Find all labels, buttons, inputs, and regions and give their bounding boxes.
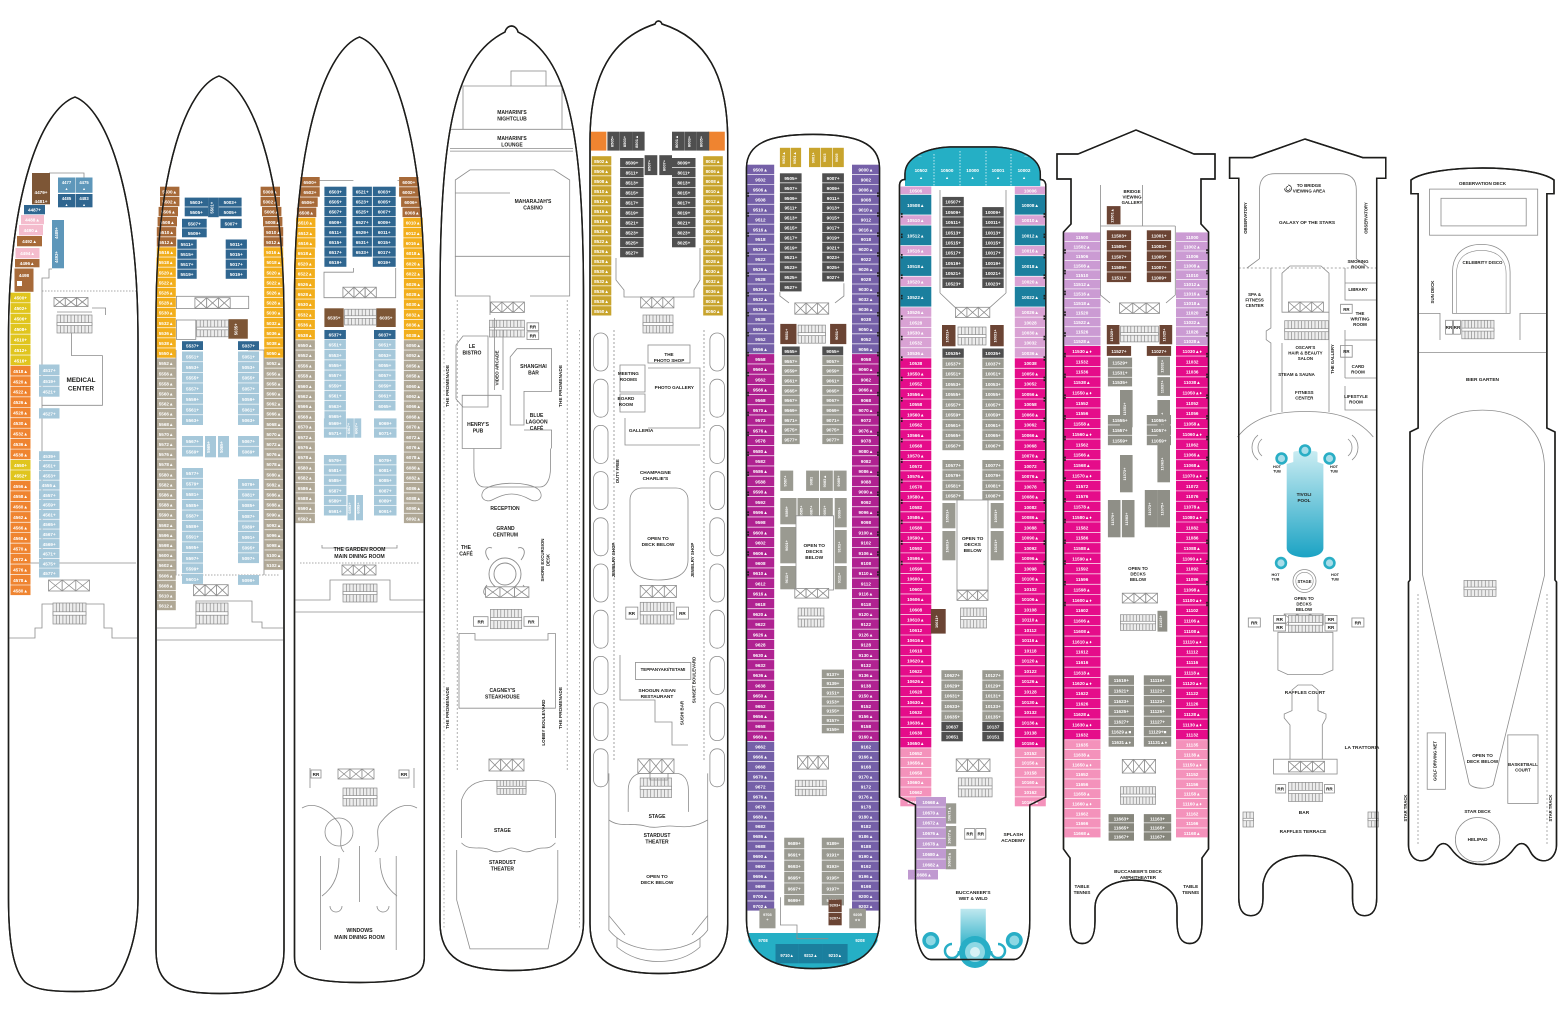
- svg-text:10510▲: 10510▲: [907, 218, 924, 223]
- svg-text:6010▲: 6010▲: [406, 221, 421, 226]
- svg-text:5019+: 5019+: [230, 272, 243, 277]
- svg-text:5512▲: 5512▲: [159, 240, 174, 245]
- svg-text:5057+: 5057+: [242, 386, 255, 391]
- svg-text:THE PROMENADE: THE PROMENADE: [558, 686, 564, 729]
- svg-text:9128: 9128: [861, 643, 872, 648]
- svg-text:5608▲: 5608▲: [159, 583, 174, 588]
- svg-text:DECKS: DECKS: [806, 549, 824, 555]
- svg-text:9528: 9528: [755, 277, 766, 282]
- svg-text:5580▲: 5580▲: [159, 472, 174, 477]
- svg-text:5026▲: 5026▲: [267, 291, 282, 296]
- svg-text:6537+: 6537+: [329, 333, 342, 338]
- svg-text:10021+: 10021+: [985, 271, 1001, 276]
- svg-text:5560▲: 5560▲: [159, 392, 174, 397]
- svg-text:VIEWING: VIEWING: [1122, 195, 1142, 200]
- svg-text:STARDUST: STARDUST: [489, 860, 516, 866]
- svg-text:LAGOON: LAGOON: [526, 420, 548, 426]
- svg-text:9152: 9152: [861, 704, 872, 709]
- svg-text:4506+: 4506+: [14, 317, 27, 322]
- svg-text:11667+: 11667+: [1114, 835, 1130, 840]
- svg-text:5072▲: 5072▲: [267, 442, 282, 447]
- svg-text:6089+: 6089+: [379, 499, 392, 504]
- svg-text:PHOTO SHOP: PHOTO SHOP: [654, 358, 685, 363]
- svg-text:10580▲: 10580▲: [907, 495, 924, 500]
- svg-text:9555+: 9555+: [784, 349, 797, 354]
- svg-text:11025+: 11025+: [1162, 328, 1167, 342]
- svg-text:9070▲: 9070▲: [859, 408, 874, 413]
- svg-text:AMPHITHEATER: AMPHITHEATER: [1120, 875, 1157, 880]
- svg-text:10036▲: 10036▲: [1022, 351, 1039, 356]
- svg-text:5503+: 5503+: [190, 200, 203, 205]
- svg-text:6085+: 6085+: [379, 478, 392, 483]
- svg-text:5601+: 5601+: [186, 577, 199, 582]
- svg-text:10011+: 10011+: [985, 220, 1001, 225]
- svg-text:11092: 11092: [1186, 567, 1199, 572]
- svg-text:9188: 9188: [861, 844, 872, 849]
- svg-text:★★: ★★: [854, 918, 861, 922]
- svg-text:10016▲: 10016▲: [1022, 249, 1039, 254]
- svg-text:6565+: 6565+: [329, 414, 342, 419]
- svg-text:9026▲: 9026▲: [859, 267, 874, 272]
- svg-text:10032: 10032: [1024, 341, 1037, 346]
- svg-text:9108: 9108: [861, 561, 872, 566]
- svg-text:8018▲: 8018▲: [706, 219, 721, 224]
- svg-text:11508▲: 11508▲: [1073, 263, 1090, 268]
- svg-text:5587+: 5587+: [186, 513, 199, 518]
- svg-text:11082: 11082: [1186, 525, 1199, 530]
- svg-text:5538▲: 5538▲: [159, 341, 174, 346]
- svg-text:9618: 9618: [755, 602, 766, 607]
- svg-text:▲: ▲: [919, 175, 923, 180]
- svg-text:9552: 9552: [755, 337, 766, 342]
- svg-text:6528▲: 6528▲: [298, 292, 313, 297]
- svg-text:9556▲: 9556▲: [753, 347, 768, 352]
- svg-text:TEPPANYAKI/TETAMI: TEPPANYAKI/TETAMI: [641, 667, 686, 672]
- svg-text:11535+: 11535+: [1112, 380, 1128, 385]
- svg-text:9153+: 9153+: [826, 700, 839, 705]
- svg-text:4498: 4498: [19, 273, 30, 278]
- svg-text:BELOW: BELOW: [964, 548, 982, 554]
- svg-text:SMOKING: SMOKING: [1348, 259, 1370, 264]
- svg-text:5088▲: 5088▲: [267, 503, 282, 508]
- svg-text:9522: 9522: [755, 257, 766, 262]
- svg-text:8512▲: 8512▲: [594, 199, 609, 204]
- svg-text:9126▲: 9126▲: [859, 632, 874, 637]
- svg-text:9101+: 9101+: [836, 541, 841, 553]
- svg-text:8501▲: 8501▲: [634, 135, 639, 148]
- svg-text:10150▲: 10150▲: [1022, 741, 1039, 746]
- svg-text:8511+: 8511+: [626, 171, 639, 176]
- svg-text:6505+: 6505+: [329, 200, 342, 205]
- svg-text:11100▲♦: 11100▲♦: [1183, 598, 1203, 603]
- svg-text:9589+: 9589+: [784, 505, 789, 517]
- svg-text:9090▲: 9090▲: [859, 490, 874, 495]
- svg-text:9193+: 9193+: [826, 864, 839, 869]
- svg-text:9702▲: 9702▲: [753, 904, 768, 909]
- svg-text:10553+: 10553+: [945, 382, 961, 387]
- svg-text:6525+: 6525+: [356, 210, 369, 215]
- svg-text:9118: 9118: [861, 602, 871, 607]
- svg-text:5069+: 5069+: [242, 450, 255, 455]
- svg-text:9708: 9708: [758, 938, 768, 943]
- svg-text:5051+: 5051+: [242, 355, 255, 360]
- svg-text:10682▲: 10682▲: [922, 862, 939, 867]
- svg-text:11527+: 11527+: [1111, 349, 1127, 354]
- svg-text:6053+: 6053+: [378, 353, 391, 358]
- svg-text:8032▲: 8032▲: [706, 279, 721, 284]
- svg-text:11121+: 11121+: [1150, 689, 1165, 694]
- svg-text:9506▲: 9506▲: [753, 187, 768, 192]
- svg-text:5558▲: 5558▲: [159, 381, 174, 386]
- svg-text:9596▲: 9596▲: [753, 510, 768, 515]
- svg-text:10531+: 10531+: [945, 329, 950, 343]
- svg-text:6093+: 6093+: [355, 502, 360, 514]
- svg-text:10530▲: 10530▲: [907, 331, 924, 336]
- svg-text:5068▲: 5068▲: [267, 422, 282, 427]
- svg-text:DECKS: DECKS: [1296, 602, 1311, 607]
- svg-text:8510▲: 8510▲: [594, 189, 609, 194]
- svg-text:4520▲: 4520▲: [13, 379, 28, 384]
- svg-text:TUB: TUB: [1330, 470, 1338, 474]
- svg-text:5510▲: 5510▲: [159, 230, 174, 235]
- svg-text:STEAM & SAUNA: STEAM & SAUNA: [1278, 372, 1315, 377]
- svg-text:6070▲: 6070▲: [406, 425, 421, 430]
- svg-text:10662: 10662: [909, 790, 922, 795]
- svg-text:10681▲: 10681▲: [947, 852, 952, 867]
- svg-text:10591+: 10591+: [945, 509, 950, 523]
- svg-text:9068: 9068: [861, 398, 872, 403]
- svg-text:JEWELRY SHOP: JEWELRY SHOP: [690, 543, 695, 578]
- svg-text:HOT: HOT: [1330, 465, 1339, 469]
- svg-text:9208: 9208: [855, 938, 865, 943]
- svg-text:6072▲: 6072▲: [406, 435, 421, 440]
- svg-text:9198: 9198: [861, 884, 872, 889]
- svg-text:5576▲: 5576▲: [159, 452, 174, 457]
- svg-text:10519+: 10519+: [945, 261, 961, 266]
- svg-text:11150▲♦: 11150▲♦: [1183, 762, 1203, 767]
- svg-text:10572: 10572: [909, 464, 922, 469]
- svg-text:10058: 10058: [1024, 402, 1037, 407]
- svg-text:4517+: 4517+: [43, 368, 56, 373]
- svg-text:11112: 11112: [1186, 650, 1198, 655]
- svg-text:6561+: 6561+: [329, 394, 342, 399]
- svg-text:9517+: 9517+: [784, 235, 797, 240]
- svg-text:10555+: 10555+: [945, 392, 961, 397]
- svg-text:10122: 10122: [1024, 669, 1037, 674]
- svg-text:6050▲: 6050▲: [406, 343, 421, 348]
- svg-text:THE PROMENADE: THE PROMENADE: [445, 364, 451, 407]
- svg-text:CENTER: CENTER: [68, 386, 95, 393]
- svg-text:5532▲: 5532▲: [159, 321, 174, 326]
- svg-text:11520: 11520: [1076, 311, 1089, 316]
- svg-text:6008▲: 6008▲: [405, 210, 420, 215]
- svg-text:HOT: HOT: [1331, 573, 1340, 577]
- svg-text:11167+: 11167+: [1150, 835, 1165, 840]
- svg-text:9526▲: 9526▲: [753, 267, 768, 272]
- svg-text:6555+: 6555+: [329, 363, 342, 368]
- svg-text:10022▲: 10022▲: [1022, 295, 1039, 300]
- svg-text:9620▲: 9620▲: [753, 612, 768, 617]
- svg-text:RR: RR: [977, 832, 984, 837]
- svg-text:9630▲: 9630▲: [753, 653, 768, 658]
- svg-text:9606▲: 9606▲: [753, 551, 768, 556]
- svg-text:11608▲: 11608▲: [1073, 629, 1090, 634]
- svg-text:10618: 10618: [909, 649, 922, 654]
- svg-text:10670▲: 10670▲: [922, 810, 939, 815]
- svg-text:5501+: 5501+: [209, 201, 214, 213]
- svg-text:9059+: 9059+: [826, 369, 839, 374]
- svg-text:9572: 9572: [755, 418, 766, 423]
- svg-text:10019+: 10019+: [985, 261, 1001, 266]
- svg-text:11630▲♦: 11630▲♦: [1072, 722, 1092, 727]
- svg-text:10523+: 10523+: [945, 281, 961, 286]
- svg-text:11529+: 11529+: [1112, 361, 1128, 366]
- svg-text:9212▲: 9212▲: [804, 953, 817, 958]
- svg-text:RR: RR: [530, 325, 537, 330]
- svg-text:11512▲: 11512▲: [1073, 282, 1090, 287]
- svg-text:8515+: 8515+: [625, 191, 638, 196]
- svg-text:9060▲: 9060▲: [859, 367, 874, 372]
- svg-text:8012▲: 8012▲: [706, 199, 721, 204]
- svg-text:6572▲: 6572▲: [298, 435, 313, 440]
- svg-text:5018▲: 5018▲: [267, 260, 282, 265]
- svg-text:4576▲: 4576▲: [13, 567, 28, 572]
- svg-text:OPEN TO: OPEN TO: [1472, 753, 1493, 758]
- svg-text:9559+: 9559+: [784, 369, 797, 374]
- svg-text:9695+: 9695+: [788, 875, 801, 880]
- svg-text:5096▲: 5096▲: [267, 533, 282, 538]
- svg-text:10012▲: 10012▲: [1022, 233, 1039, 238]
- svg-text:9003: 9003: [822, 153, 827, 162]
- svg-text:6579+: 6579+: [329, 458, 342, 463]
- svg-text:11600▲♦: 11600▲♦: [1072, 598, 1092, 603]
- svg-text:11132: 11132: [1186, 733, 1199, 738]
- svg-text:9091+: 9091+: [822, 505, 827, 517]
- svg-text:5518▲: 5518▲: [159, 260, 174, 265]
- svg-text:9511+: 9511+: [784, 206, 797, 211]
- svg-text:11622: 11622: [1076, 691, 1089, 696]
- svg-text:5003+: 5003+: [224, 200, 237, 205]
- svg-text:9022: 9022: [861, 257, 872, 262]
- svg-text:9562: 9562: [755, 377, 766, 382]
- svg-text:CENTER: CENTER: [1295, 396, 1314, 401]
- svg-text:11120▲♦: 11120▲♦: [1183, 681, 1203, 686]
- svg-text:11066▲: 11066▲: [1184, 453, 1201, 458]
- svg-text:6558▲: 6558▲: [298, 374, 313, 379]
- svg-text:9558: 9558: [755, 357, 766, 362]
- svg-text:10096▲: 10096▲: [1022, 556, 1039, 561]
- svg-text:6509+: 6509+: [329, 220, 342, 225]
- svg-text:9585+: 9585+: [799, 505, 804, 517]
- svg-text:10158: 10158: [1024, 770, 1037, 775]
- svg-text:11002▲: 11002▲: [1184, 244, 1201, 249]
- svg-text:10015+: 10015+: [985, 241, 1001, 246]
- svg-text:11552: 11552: [1076, 401, 1089, 406]
- svg-text:9566▲: 9566▲: [753, 388, 768, 393]
- svg-text:6006+: 6006+: [404, 200, 417, 205]
- svg-text:8005+: 8005+: [699, 135, 704, 147]
- svg-text:11125+: 11125+: [1150, 709, 1165, 714]
- svg-text:11610▲♦: 11610▲♦: [1072, 639, 1092, 644]
- svg-text:9055+: 9055+: [826, 349, 839, 354]
- svg-text:11625+: 11625+: [1114, 709, 1130, 714]
- svg-text:5062▲: 5062▲: [267, 402, 282, 407]
- svg-text:6511+: 6511+: [329, 230, 342, 235]
- svg-text:11165+: 11165+: [1150, 826, 1165, 831]
- svg-text:5087+: 5087+: [242, 514, 255, 519]
- svg-text:11525+: 11525+: [1109, 328, 1114, 342]
- svg-text:4496▲: 4496▲: [20, 261, 35, 266]
- svg-text:10671▲: 10671▲: [947, 806, 952, 821]
- svg-text:SUNSET BOULEVARD: SUNSET BOULEVARD: [692, 657, 697, 704]
- svg-text:9200▲: 9200▲: [859, 894, 874, 899]
- svg-text:6502+: 6502+: [304, 190, 317, 195]
- svg-text:10537+: 10537+: [945, 361, 961, 366]
- svg-text:TUB: TUB: [1331, 578, 1339, 582]
- svg-text:9691+: 9691+: [788, 853, 801, 858]
- svg-text:5592▲: 5592▲: [159, 523, 174, 528]
- svg-text:9688: 9688: [755, 844, 766, 849]
- svg-text:4492▲: 4492▲: [22, 239, 37, 244]
- svg-text:10018▲: 10018▲: [1022, 264, 1039, 269]
- svg-text:10051+: 10051+: [985, 372, 1001, 377]
- svg-text:9550▲: 9550▲: [753, 327, 768, 332]
- svg-text:9510▲: 9510▲: [753, 207, 768, 212]
- svg-text:10008▲: 10008▲: [1022, 203, 1039, 208]
- svg-text:9576▲: 9576▲: [753, 428, 768, 433]
- svg-text:5517+: 5517+: [181, 262, 194, 267]
- svg-text:11138▲: 11138▲: [1184, 753, 1201, 758]
- svg-text:HOT: HOT: [1271, 573, 1280, 577]
- svg-text:10102: 10102: [1024, 587, 1037, 592]
- svg-text:RAFFLES COURT: RAFFLES COURT: [1285, 690, 1326, 696]
- svg-text:9690▲: 9690▲: [753, 854, 768, 859]
- svg-text:RR: RR: [1328, 617, 1335, 622]
- svg-text:11106▲: 11106▲: [1184, 619, 1201, 624]
- svg-text:9102: 9102: [861, 541, 872, 546]
- svg-text:4489+: 4489+: [54, 227, 59, 239]
- svg-text:THEATER: THEATER: [491, 867, 515, 873]
- svg-text:5090▲: 5090▲: [267, 513, 282, 518]
- svg-text:▲: ▲: [996, 175, 1000, 180]
- svg-text:10602: 10602: [909, 587, 922, 592]
- svg-text:5066▲: 5066▲: [267, 412, 282, 417]
- svg-text:6026▲: 6026▲: [406, 282, 421, 287]
- svg-text:6080▲: 6080▲: [406, 465, 421, 470]
- svg-text:10020▲: 10020▲: [1022, 279, 1039, 284]
- svg-text:8520▲: 8520▲: [594, 229, 609, 234]
- svg-text:5059+: 5059+: [242, 397, 255, 402]
- svg-text:9500▲: 9500▲: [753, 167, 768, 172]
- svg-text:11131▲♦: 11131▲♦: [1148, 740, 1168, 745]
- svg-text:5037+: 5037+: [242, 344, 255, 349]
- svg-text:9075+: 9075+: [826, 428, 839, 433]
- svg-text:11572: 11572: [1076, 484, 1089, 489]
- svg-text:ROOMS: ROOMS: [620, 377, 637, 382]
- svg-text:10050▲: 10050▲: [1022, 371, 1039, 376]
- svg-text:TUB: TUB: [1272, 578, 1280, 582]
- svg-text:11629▲■: 11629▲■: [1111, 730, 1131, 735]
- svg-text:11557+: 11557+: [1112, 428, 1128, 433]
- svg-text:4502+: 4502+: [14, 306, 27, 311]
- svg-text:10672▲: 10672▲: [922, 821, 939, 826]
- svg-text:10118: 10118: [1024, 649, 1037, 654]
- svg-text:9098: 9098: [861, 520, 872, 525]
- svg-text:10558: 10558: [909, 402, 922, 407]
- svg-text:10579+: 10579+: [945, 473, 961, 478]
- svg-text:5028▲: 5028▲: [267, 301, 282, 306]
- svg-text:DESK: DESK: [545, 553, 550, 566]
- svg-text:11059+: 11059+: [1151, 439, 1167, 444]
- svg-text:9520▲: 9520▲: [753, 247, 768, 252]
- svg-text:8516▲: 8516▲: [594, 209, 609, 214]
- svg-text:10626▲: 10626▲: [907, 679, 924, 684]
- svg-text:11078▲: 11078▲: [1184, 505, 1201, 510]
- svg-text:4551+: 4551+: [43, 464, 56, 469]
- svg-text:9611+: 9611+: [784, 572, 789, 583]
- svg-text:11583+: 11583+: [1124, 512, 1129, 526]
- svg-text:5065+: 5065+: [219, 441, 224, 453]
- svg-text:9092: 9092: [861, 500, 872, 505]
- svg-text:RR: RR: [1276, 617, 1283, 622]
- svg-text:6552▲: 6552▲: [298, 353, 313, 358]
- svg-text:10522▲: 10522▲: [907, 295, 924, 300]
- svg-text:5092▲: 5092▲: [267, 523, 282, 528]
- svg-text:10611+: 10611+: [934, 614, 939, 628]
- svg-text:11560▲♦: 11560▲♦: [1072, 432, 1092, 437]
- svg-text:9509+: 9509+: [784, 196, 797, 201]
- svg-text:OBSERVATORY: OBSERVATORY: [1243, 202, 1248, 234]
- svg-text:10638: 10638: [909, 731, 922, 736]
- svg-text:5597+: 5597+: [186, 556, 199, 561]
- svg-text:4481+: 4481+: [35, 199, 48, 204]
- svg-text:11526: 11526: [1076, 330, 1089, 335]
- svg-text:BAR: BAR: [528, 371, 539, 377]
- svg-text:9568: 9568: [755, 398, 766, 403]
- svg-text:11103+: 11103+: [1159, 615, 1163, 628]
- svg-text:10658: 10658: [909, 770, 922, 775]
- svg-text:DECK BELOW: DECK BELOW: [1467, 759, 1499, 764]
- svg-text:5086▲: 5086▲: [267, 493, 282, 498]
- svg-text:BELOW: BELOW: [1130, 577, 1147, 582]
- svg-text:8536▲: 8536▲: [594, 289, 609, 294]
- svg-text:4580▲: 4580▲: [13, 588, 28, 593]
- svg-text:10627+: 10627+: [944, 673, 960, 678]
- svg-text:4483: 4483: [79, 196, 89, 201]
- svg-text:11130▲♦: 11130▲♦: [1183, 722, 1203, 727]
- svg-text:10677▲: 10677▲: [947, 829, 952, 844]
- svg-text:5591+: 5591+: [186, 535, 199, 540]
- svg-text:8530▲: 8530▲: [594, 269, 609, 274]
- svg-text:11038▲: 11038▲: [1184, 380, 1201, 385]
- svg-text:4558▲: 4558▲: [13, 494, 28, 499]
- svg-text:10100▲: 10100▲: [1022, 577, 1039, 582]
- svg-text:10518▲: 10518▲: [907, 264, 924, 269]
- svg-text:9166▲: 9166▲: [859, 754, 874, 759]
- svg-text:SUSHI BAR: SUSHI BAR: [680, 700, 685, 725]
- svg-text:8503+: 8503+: [622, 135, 627, 147]
- svg-text:9518: 9518: [755, 237, 766, 242]
- svg-text:10126▲: 10126▲: [1022, 679, 1039, 684]
- svg-text:11008▲: 11008▲: [1184, 263, 1201, 268]
- svg-text:5011+: 5011+: [230, 242, 243, 247]
- svg-text:9006▲: 9006▲: [859, 187, 874, 192]
- svg-text:5078▲: 5078▲: [267, 462, 282, 467]
- svg-text:10562: 10562: [909, 423, 922, 428]
- svg-text:4530▲: 4530▲: [13, 421, 28, 426]
- svg-text:9600▲: 9600▲: [753, 530, 768, 535]
- svg-text:6518▲: 6518▲: [298, 251, 313, 256]
